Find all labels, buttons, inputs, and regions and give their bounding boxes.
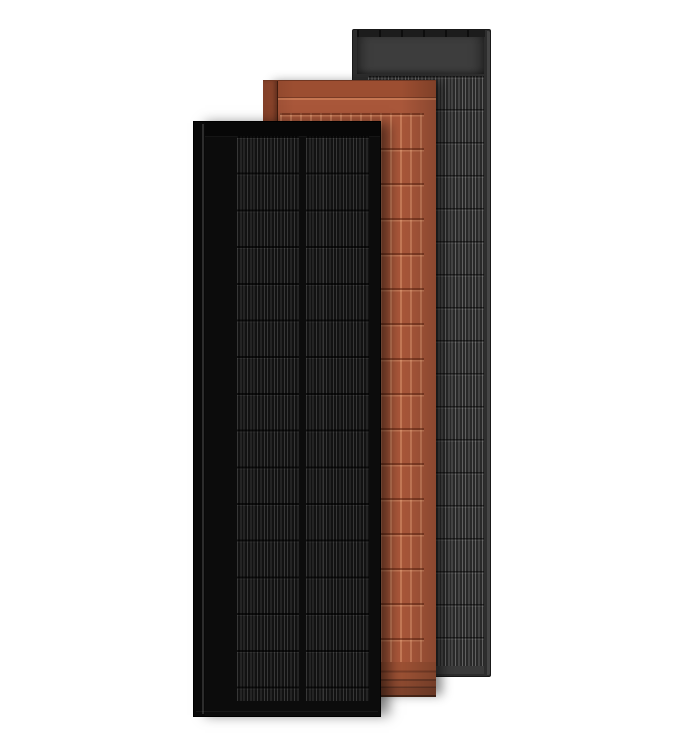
- product-render-scene: [0, 0, 684, 748]
- solar-panel-black: [193, 121, 381, 717]
- gray-panel-right-bezel: [487, 31, 490, 675]
- gray-panel-header-block: [357, 37, 484, 74]
- black-panel-bottom-hairline: [196, 711, 378, 712]
- terracotta-panel-top-highlight: [263, 98, 436, 100]
- terracotta-panel-top-band: [263, 81, 436, 98]
- black-panel-cell-column-left: [237, 136, 299, 701]
- black-panel-left-rail-highlight: [202, 124, 204, 714]
- black-panel-top-frame: [194, 122, 380, 137]
- black-panel-cell-grid: [237, 136, 369, 701]
- gray-panel-top-rail: [357, 30, 485, 37]
- black-panel-cell-column-right: [306, 136, 369, 701]
